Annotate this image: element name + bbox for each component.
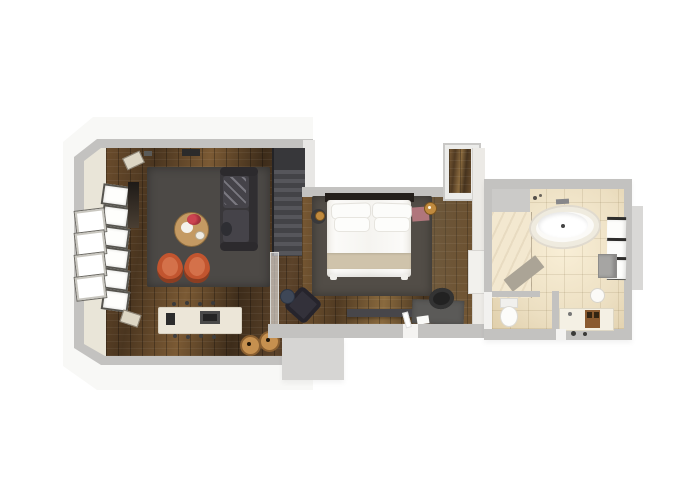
sofa-armrest-bottom xyxy=(220,242,258,251)
console-knob-4 xyxy=(211,301,215,305)
wall-shelf-item xyxy=(182,149,200,156)
entry-landing-slab xyxy=(282,338,344,380)
bed-pillow xyxy=(374,217,410,232)
sofa-pillow xyxy=(221,222,232,236)
floor-plan xyxy=(0,0,700,500)
bed-foot-right xyxy=(401,274,408,280)
stairs-glass-balustrade xyxy=(270,252,279,334)
console-leg-1 xyxy=(173,334,177,338)
coffee-table-cup xyxy=(195,231,205,240)
vanity-caddy-item xyxy=(594,312,599,318)
sofa-backrest xyxy=(249,171,257,247)
stairs-landing xyxy=(272,148,305,170)
window-pane-outer xyxy=(75,274,107,300)
stairs xyxy=(272,170,305,256)
bed-foot-left xyxy=(330,274,337,280)
console-knob-3 xyxy=(198,302,202,306)
bathroom-door-gap xyxy=(484,292,492,329)
round-sink xyxy=(590,288,605,303)
bottom-wall-fixture xyxy=(583,332,587,336)
bathroom-bottom-door-gap xyxy=(556,329,566,340)
coffee-table-flowers xyxy=(187,214,201,225)
console-leg-4 xyxy=(212,335,216,339)
sofa-armrest-top xyxy=(220,167,258,176)
sofa-throw xyxy=(224,177,246,205)
toilet-stall-wall-h xyxy=(492,291,540,297)
wood-stool-right-dot xyxy=(266,338,270,342)
bed-runner xyxy=(327,253,411,269)
wood-stool-left xyxy=(240,335,261,356)
bathtub-faucet xyxy=(556,199,569,205)
bathroom-duct-block xyxy=(492,189,530,212)
console-item-small xyxy=(166,313,175,325)
bottom-wall-fixture xyxy=(571,331,576,336)
bathtub-drain xyxy=(561,224,565,228)
console-leg-3 xyxy=(199,334,203,338)
wood-stool-left-dot xyxy=(247,342,251,346)
wall-art xyxy=(128,182,139,228)
bathroom-cabinet xyxy=(598,254,617,278)
console-leg-2 xyxy=(186,335,190,339)
bedroom-side-table xyxy=(280,289,295,304)
bench-lamp-shade xyxy=(428,206,431,209)
console-item-large xyxy=(200,311,220,324)
toilet-stall-wall-v xyxy=(552,291,559,329)
bed-pillow xyxy=(334,217,370,232)
wall-small-item xyxy=(144,151,152,156)
toiletry-item xyxy=(539,194,542,197)
nightstand-lamp xyxy=(315,211,325,221)
toilet-bowl xyxy=(500,306,518,327)
vanity-faucet xyxy=(568,312,572,316)
bedroom-bottom-wall xyxy=(268,324,492,338)
console-knob-1 xyxy=(172,302,176,306)
closet-nook-floor xyxy=(449,149,471,193)
bathroom-wall-protrusion xyxy=(632,206,643,290)
console-knob-2 xyxy=(185,301,189,305)
toiletry-item xyxy=(533,196,537,200)
vanity-caddy-item xyxy=(587,312,592,318)
